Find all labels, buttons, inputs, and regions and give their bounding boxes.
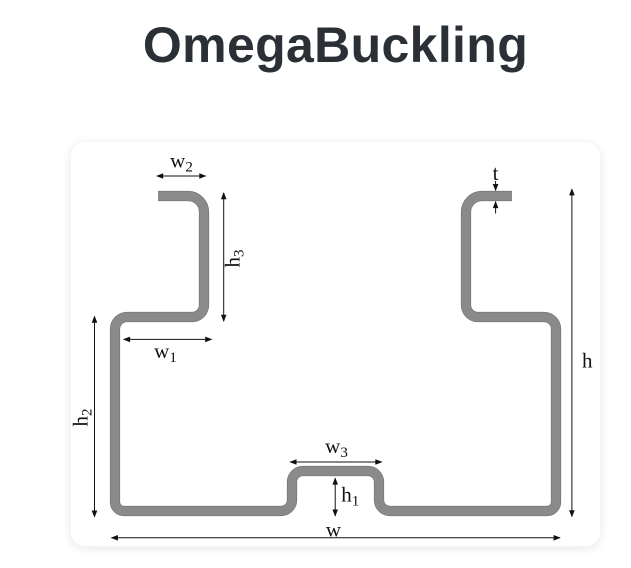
svg-text:h3: h3	[220, 250, 247, 268]
svg-text:w3: w3	[325, 434, 348, 461]
svg-text:w: w	[326, 518, 342, 542]
svg-text:w2: w2	[170, 149, 193, 176]
svg-text:h1: h1	[341, 483, 359, 510]
svg-text:h2: h2	[69, 409, 96, 427]
svg-text:w1: w1	[154, 339, 177, 366]
svg-text:t: t	[493, 161, 499, 185]
svg-text:h: h	[582, 348, 593, 372]
